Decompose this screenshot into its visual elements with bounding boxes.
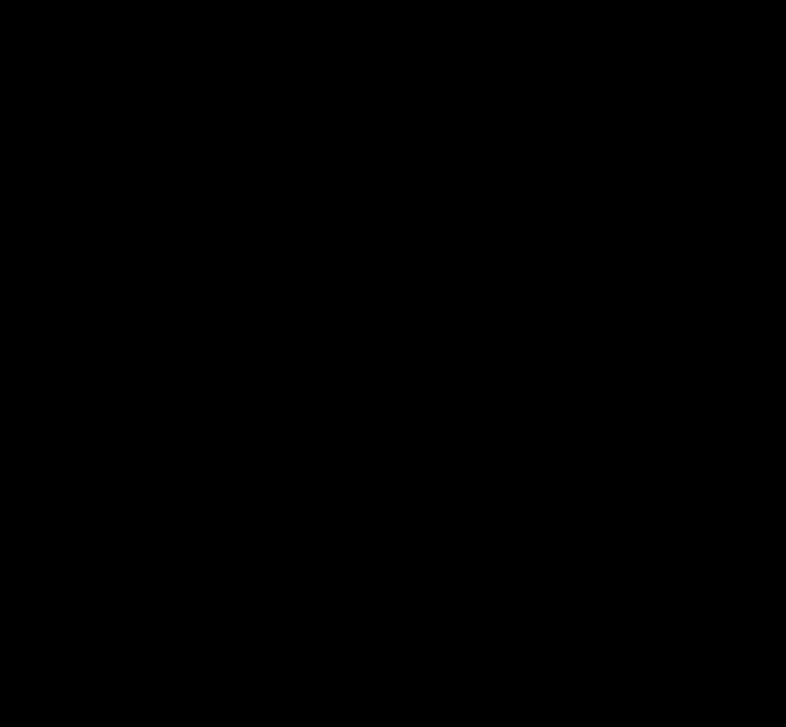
cad-viewport[interactable]	[0, 0, 786, 727]
site-plan-svg	[0, 0, 300, 150]
